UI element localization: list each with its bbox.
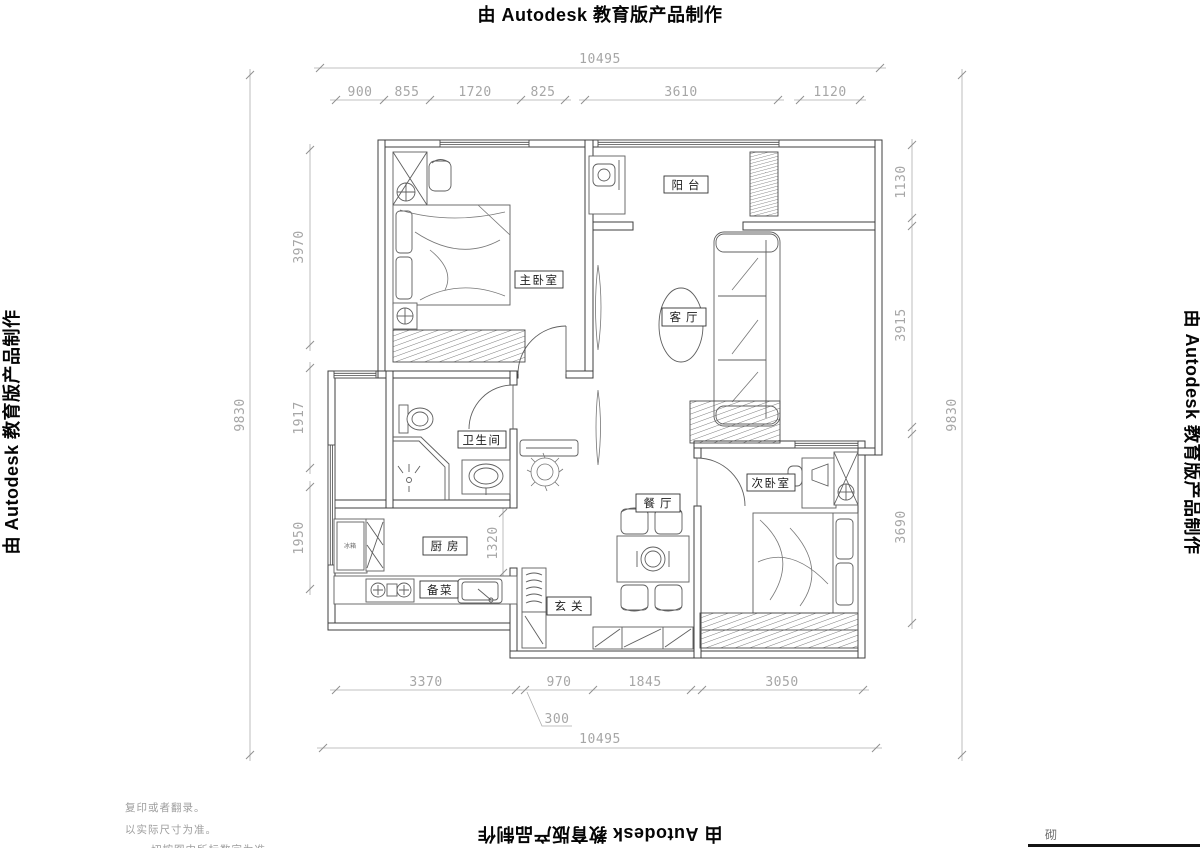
room-label-prep-area: 备菜 xyxy=(420,581,458,598)
svg-text:备菜: 备菜 xyxy=(427,583,453,597)
svg-text:1120: 1120 xyxy=(813,85,846,100)
room-label-dining-room: 餐厅 xyxy=(636,494,680,512)
shower xyxy=(393,437,449,500)
second-bedroom-wardrobe-bottom xyxy=(700,613,858,648)
dim-left: 9830 3970 1917 1950 xyxy=(233,69,314,761)
dim-right: 1130 3915 3690 9830 xyxy=(894,69,966,761)
svg-text:厨房: 厨房 xyxy=(431,540,464,553)
kitchen-tall-cabinet xyxy=(366,519,384,571)
washing-machine xyxy=(589,156,625,214)
dim-right-overall: 9830 xyxy=(945,398,960,431)
shoe-cabinet xyxy=(522,568,546,648)
svg-text:970: 970 xyxy=(547,675,572,690)
master-wardrobe xyxy=(393,330,525,362)
svg-text:1130: 1130 xyxy=(894,165,909,198)
hall-plant xyxy=(527,453,563,491)
window-master-top xyxy=(440,140,529,147)
svg-text:餐厅: 餐厅 xyxy=(644,496,677,510)
room-label-master-bedroom: 主卧室 xyxy=(515,271,563,288)
hall-console xyxy=(520,440,578,456)
banner-bottom: 由 Autodesk 教育版产品制作 xyxy=(477,824,722,845)
entry-cabinets xyxy=(593,627,693,649)
svg-text:主卧室: 主卧室 xyxy=(520,273,559,287)
svg-text:825: 825 xyxy=(531,85,556,100)
master-bed xyxy=(393,205,510,305)
window-second-bedroom-top xyxy=(795,441,858,448)
dim-interior-hall: 1320 xyxy=(486,507,507,579)
balcony-plant-shelf xyxy=(750,152,778,216)
svg-text:3970: 3970 xyxy=(292,230,307,263)
dim-top: 10495 900 855 1720 825 3610 1120 xyxy=(314,52,886,104)
bath-sink xyxy=(462,460,510,495)
svg-text:1950: 1950 xyxy=(292,521,307,554)
title-block-fragment: 砌 xyxy=(1028,828,1200,847)
kitchen-sink xyxy=(458,579,502,603)
room-label-living-room: 客厅 xyxy=(662,308,706,326)
svg-text:3915: 3915 xyxy=(894,308,909,341)
title-block-text: 砌 xyxy=(1045,828,1057,842)
second-bedroom-wardrobe-top xyxy=(690,401,780,443)
notes-block: 复印或者翻录。 以实际尺寸为准。 、一切按图中所标数字为准。 xyxy=(125,801,278,848)
svg-text:3370: 3370 xyxy=(409,675,442,690)
dim-left-overall: 9830 xyxy=(233,398,248,431)
master-stool xyxy=(429,160,451,192)
stove xyxy=(366,579,414,602)
svg-text:客厅: 客厅 xyxy=(670,310,703,324)
room-label-second-bedroom: 次卧室 xyxy=(747,474,795,491)
dim-bottom-offset: 300 xyxy=(545,712,570,727)
fridge: 冰箱 xyxy=(334,519,367,573)
dim-bottom: 3370 970 1845 3050 300 10495 xyxy=(317,675,882,752)
svg-text:1845: 1845 xyxy=(628,675,661,690)
svg-text:卫生间: 卫生间 xyxy=(463,433,502,447)
master-dresser xyxy=(393,152,427,205)
svg-text:1917: 1917 xyxy=(292,401,307,434)
dining-table xyxy=(617,536,689,582)
master-nightstand xyxy=(393,303,417,329)
svg-text:3610: 3610 xyxy=(664,85,697,100)
svg-text:3690: 3690 xyxy=(894,510,909,543)
note-line-1: 复印或者翻录。 xyxy=(125,801,206,814)
note-line-2: 以实际尺寸为准。 xyxy=(125,823,217,836)
dim-bottom-overall: 10495 xyxy=(579,732,621,747)
title-block-border xyxy=(1028,844,1200,847)
sofa xyxy=(714,232,780,426)
toilet xyxy=(399,405,433,433)
room-label-kitchen: 厨房 xyxy=(423,537,467,555)
floorplan-sheet: 由 Autodesk 教育版产品制作 由 Autodesk 教育版产品制作 由 … xyxy=(0,0,1200,848)
door-second-bedroom xyxy=(697,458,745,506)
svg-text:3050: 3050 xyxy=(765,675,798,690)
svg-text:阳台: 阳台 xyxy=(672,178,705,192)
room-label-bathroom: 卫生间 xyxy=(458,431,506,448)
second-bed xyxy=(753,513,858,613)
svg-text:次卧室: 次卧室 xyxy=(752,476,791,490)
dim-top-overall: 10495 xyxy=(579,52,621,67)
banner-top: 由 Autodesk 教育版产品制作 xyxy=(477,4,722,25)
svg-text:855: 855 xyxy=(395,85,420,100)
room-label-balcony: 阳台 xyxy=(664,176,708,193)
svg-text:900: 900 xyxy=(348,85,373,100)
curtain-marks xyxy=(596,265,602,465)
fridge-label: 冰箱 xyxy=(344,542,356,550)
svg-text:1720: 1720 xyxy=(458,85,491,100)
note-line-3: 、一切按图中所标数字为准。 xyxy=(128,843,278,848)
room-label-entry: 玄关 xyxy=(547,597,591,615)
door-bathroom xyxy=(469,385,513,429)
banner-right: 由 Autodesk 教育版产品制作 xyxy=(1182,309,1200,554)
svg-text:1320: 1320 xyxy=(486,526,501,559)
banner-left: 由 Autodesk 教育版产品制作 xyxy=(1,309,22,554)
window-balcony-top xyxy=(598,140,779,147)
svg-text:玄关: 玄关 xyxy=(555,599,588,613)
window-left-step xyxy=(334,371,376,378)
second-bedroom-cabinet xyxy=(834,452,858,505)
